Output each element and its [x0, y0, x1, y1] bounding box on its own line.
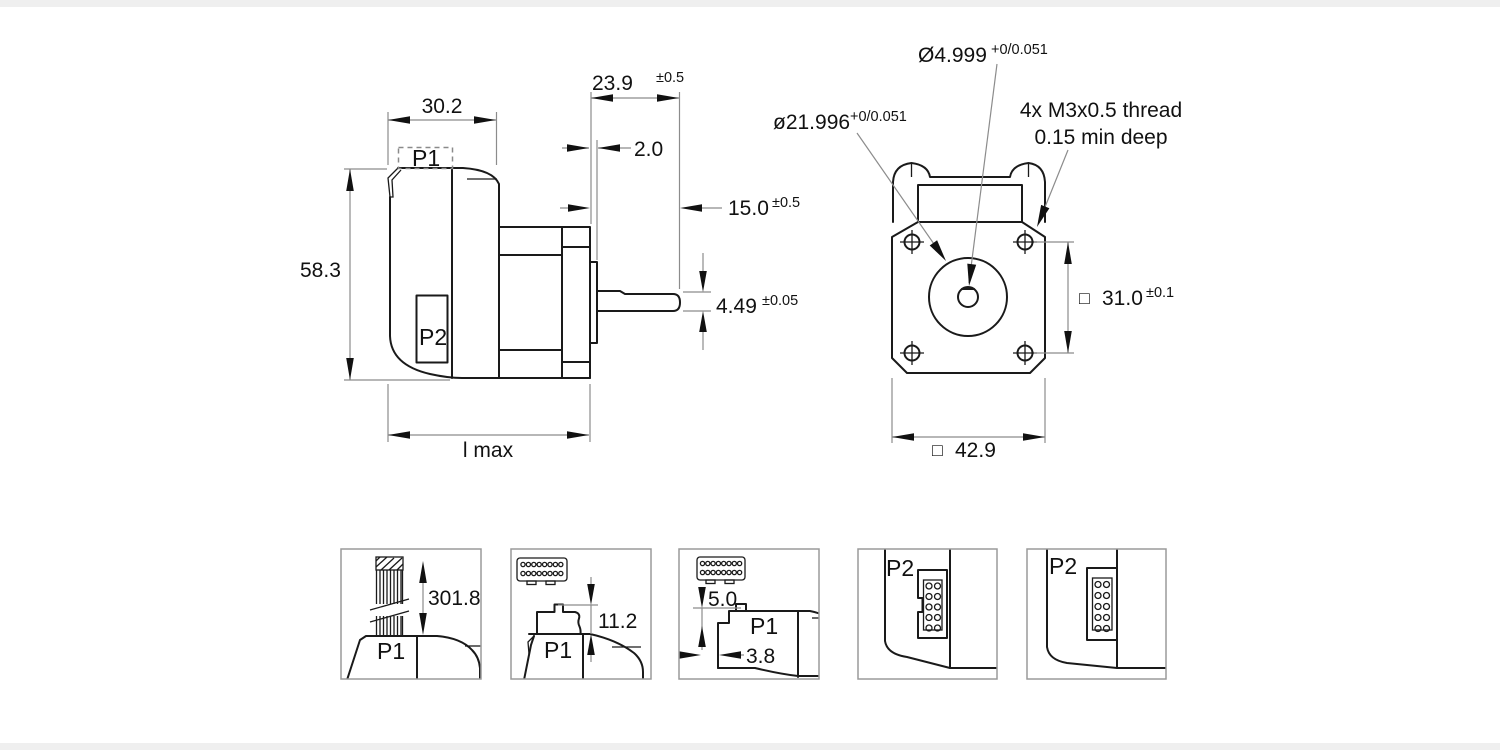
box5-p2-label: P2 [1049, 553, 1077, 579]
hole-spacing-square-symbol: □ [1079, 288, 1090, 308]
dim-across-flat-4-49: 4.49 ±0.05 [683, 253, 798, 350]
thread-note-line2: 0.15 min deep [1034, 126, 1167, 149]
cable-length-text: 301.8 [428, 587, 481, 610]
flange-square-symbol: □ [932, 440, 943, 460]
engineering-drawing-page: P1 P2 30.2 23.9 ±0.5 2.0 15.0 ±0.5 [0, 0, 1500, 750]
detail-box-p1-offset: 5.0 3.8 P1 [675, 549, 845, 679]
side-p1-label: P1 [412, 145, 440, 171]
side-view: P1 P2 30.2 23.9 ±0.5 2.0 15.0 ±0.5 [300, 70, 800, 462]
mounting-holes [900, 230, 1037, 365]
p2-keyed-pins [926, 583, 941, 631]
detail-box-cable: 301.8 P1 [341, 549, 481, 680]
dim-width-text: 30.2 [422, 95, 463, 118]
thread-note-line1: 4x M3x0.5 thread [1020, 99, 1182, 122]
shaft-dia-tol: +0/0.051 [991, 42, 1048, 58]
p1-narrow-profile [718, 604, 746, 668]
rear-shroud-front [918, 185, 1022, 222]
flange-outline [892, 222, 1045, 373]
dim-length-lmax: l max [388, 384, 590, 462]
detail-box-p2-keyed: P2 [858, 549, 997, 679]
p2-plain-pins [1095, 582, 1110, 632]
dim-shaft-extension-23-9: 23.9 ±0.5 [591, 70, 684, 289]
detail-box-p1-height: 11.2 P1 [511, 549, 651, 680]
shaft-profile [597, 291, 680, 311]
dim-shaft-ext-text: 23.9 [592, 72, 633, 95]
box2-p1-label: P1 [544, 637, 572, 663]
box3-p1-label: P1 [750, 613, 778, 639]
pilot-dia-text: ø21.996 [773, 111, 850, 134]
motor-dimension-drawing: P1 P2 30.2 23.9 ±0.5 2.0 15.0 ±0.5 [0, 0, 1500, 750]
dim-flat-length-text: 15.0 [728, 197, 769, 220]
detail-box4-frame [858, 549, 997, 679]
dim-boss-2-0: 2.0 [562, 138, 663, 260]
side-p2-label: P2 [419, 324, 447, 350]
connector-icon-top-view [517, 558, 567, 585]
dim-length-text: l max [463, 439, 514, 462]
cover-corner-bevel [388, 168, 401, 197]
connector-icon-top-view-2 [697, 557, 745, 584]
dim-flat-length-tol: ±0.5 [772, 195, 800, 211]
pilot-dia-tol: +0/0.051 [850, 109, 907, 125]
flange-size-text: 42.9 [955, 439, 996, 462]
label-thread-note: 4x M3x0.5 thread 0.15 min deep [1020, 99, 1182, 227]
hole-spacing-tol: ±0.1 [1146, 285, 1174, 301]
p1-stickout-text: 5.0 [708, 588, 737, 611]
dim-across-flat-text: 4.49 [716, 295, 757, 318]
box1-p1-label: P1 [377, 638, 405, 664]
p1-offset-text: 3.8 [746, 645, 775, 668]
front-view: Ø4.999 +0/0.051 ø21.996 +0/0.051 4x M3x0… [773, 42, 1182, 462]
detail-box1-frame [341, 549, 481, 679]
shaft-dia-text: Ø4.999 [918, 44, 987, 67]
ribbon-cable [370, 557, 409, 635]
hole-spacing-text: 31.0 [1102, 287, 1143, 310]
dim-flange-42-9: □ 42.9 [892, 378, 1045, 462]
dim-hole-spacing-31-0: □ 31.0 ±0.1 [1034, 242, 1174, 353]
dim-across-flat-tol: ±0.05 [762, 293, 798, 309]
dim-boss-text: 2.0 [634, 138, 663, 161]
dim-height-text: 58.3 [300, 259, 341, 282]
dim-shaft-ext-tol: ±0.5 [656, 70, 684, 86]
page-bottom-strip [0, 743, 1500, 750]
p1-height-text: 11.2 [598, 610, 637, 633]
p1-side-profile [537, 605, 581, 635]
detail-box-p2-plain: P2 [1027, 549, 1166, 679]
pilot-boss-profile [590, 262, 597, 343]
page-top-strip [0, 0, 1500, 7]
dim-width-30-2: 30.2 [388, 95, 497, 165]
box4-p2-label: P2 [886, 555, 914, 581]
